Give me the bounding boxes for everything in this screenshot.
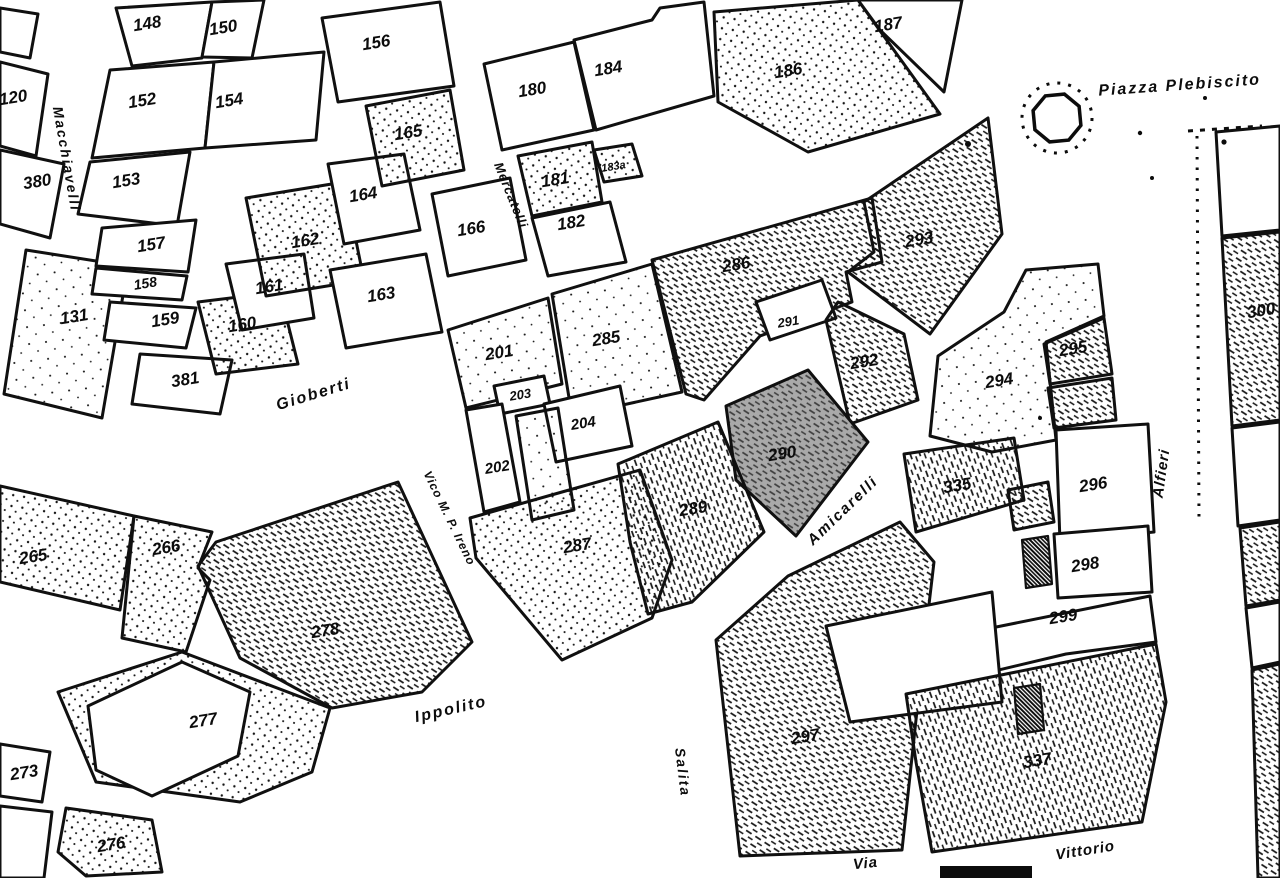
parcel-265: [0, 486, 134, 610]
parcel-area: [1240, 522, 1280, 606]
speckle-dot: [1150, 176, 1154, 180]
street-label-via: Via: [852, 854, 879, 874]
parcel-area: [1022, 536, 1052, 588]
parcel-293: [848, 118, 1002, 334]
parcels-layer: [0, 0, 1280, 878]
parcel-380: [0, 150, 64, 238]
parcel-298: [1054, 526, 1152, 598]
parcel-266: [122, 516, 212, 652]
cadastral-map: 1203801311481501521541561531571581593811…: [0, 0, 1280, 878]
map-edge-bar: [940, 866, 1032, 878]
parcel-area: [1048, 378, 1116, 428]
street-label-gioberti: Gioberti: [274, 375, 353, 414]
parcel-area: [1246, 602, 1280, 668]
dashed-boundary-vertical: [1197, 136, 1199, 520]
parcel-area: [1008, 482, 1054, 530]
speckle-dot: [1203, 96, 1207, 100]
speckle-dot: [1221, 139, 1226, 144]
fountain-basin: [1033, 94, 1081, 142]
street-label-alfieri: Alfieri: [1150, 448, 1174, 500]
parcel-area: [1232, 422, 1280, 526]
street-label-ippolito: Ippolito: [413, 693, 489, 726]
street-label-salita: Salita: [672, 747, 694, 798]
street-label-piazza-plebiscito: Piazza Plebiscito: [1098, 71, 1262, 99]
parcel-153: [78, 152, 190, 226]
parcel-156: [322, 2, 454, 102]
parcel-area: [1014, 684, 1044, 734]
parcel-area: [1252, 664, 1280, 878]
parcel-152: [92, 62, 214, 158]
street-label-vittorio: Vittorio: [1054, 837, 1116, 863]
speckle-dot: [1038, 416, 1042, 420]
parcel-202: [466, 404, 520, 512]
parcel-area: [0, 8, 38, 58]
speckle-dot: [1138, 131, 1142, 135]
parcel-148: [116, 2, 212, 66]
landmarks-layer: [1022, 83, 1092, 153]
cadastral-map-page: 1203801311481501521541561531571581593811…: [0, 0, 1280, 878]
parcel-159: [104, 302, 196, 348]
parcel-area: [0, 806, 52, 878]
speckle-dot: [965, 141, 971, 147]
parcel-120: [0, 62, 48, 156]
parcel-300: [1222, 232, 1280, 426]
